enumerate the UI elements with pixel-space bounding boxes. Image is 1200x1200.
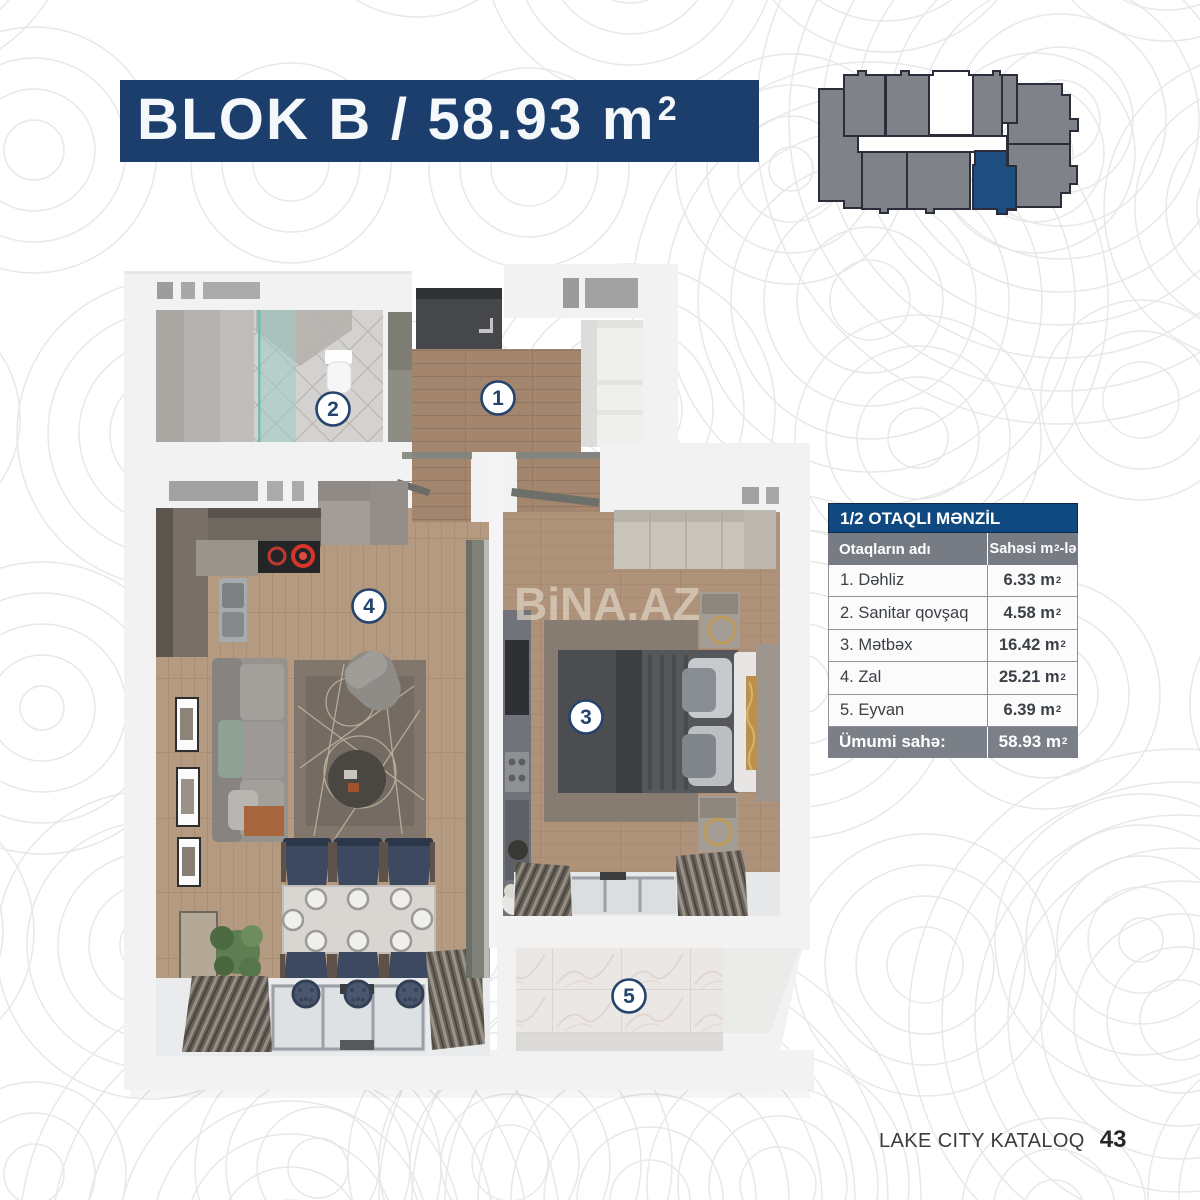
svg-text:2: 2 (327, 398, 339, 421)
svg-text:1: 1 (492, 387, 504, 410)
svg-text:5: 5 (623, 985, 635, 1008)
svg-text:BiNA.AZ: BiNA.AZ (514, 578, 701, 630)
svg-text:3: 3 (580, 706, 592, 729)
svg-text:4: 4 (363, 595, 375, 618)
